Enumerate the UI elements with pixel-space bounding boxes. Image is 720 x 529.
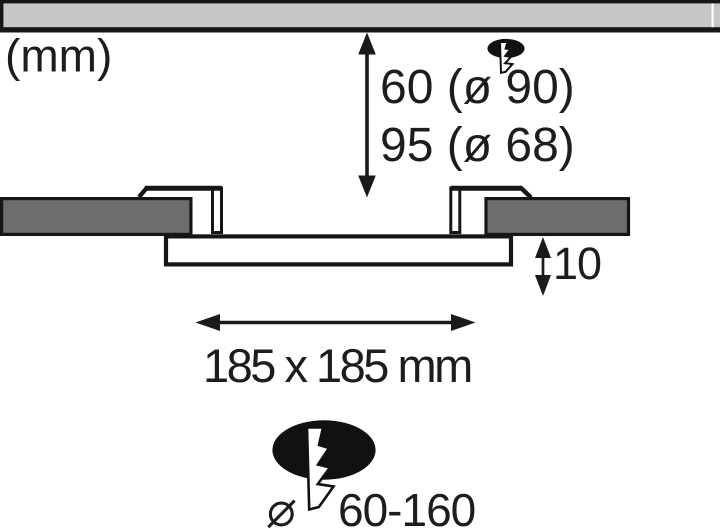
svg-text:185 x 185 mm: 185 x 185 mm — [203, 339, 471, 392]
svg-text:60 (ø 90): 60 (ø 90) — [380, 61, 575, 114]
svg-text:95 (ø 68): 95 (ø 68) — [380, 119, 575, 172]
svg-text:(mm): (mm) — [5, 30, 112, 82]
svg-text:10: 10 — [553, 238, 601, 289]
svg-text:60-160: 60-160 — [338, 484, 475, 529]
